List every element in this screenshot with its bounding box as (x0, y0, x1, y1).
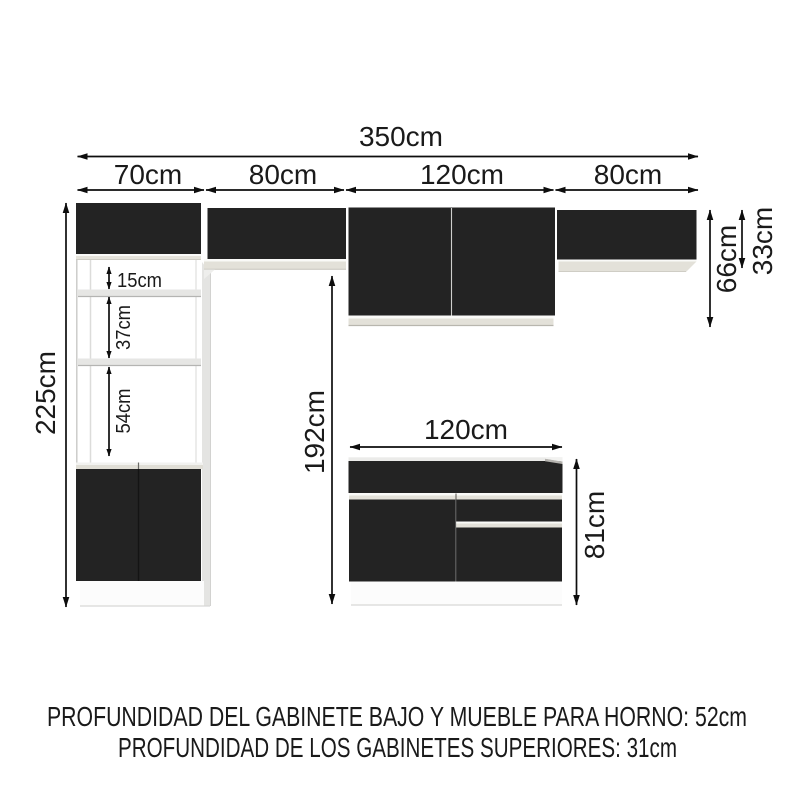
svg-text:192cm: 192cm (299, 390, 330, 474)
svg-text:80cm: 80cm (249, 159, 317, 190)
svg-text:225cm: 225cm (30, 351, 61, 435)
svg-text:37cm: 37cm (113, 305, 135, 350)
svg-text:81cm: 81cm (579, 491, 610, 559)
svg-text:350cm: 350cm (359, 121, 443, 152)
svg-text:33cm: 33cm (747, 207, 778, 275)
svg-text:PROFUNDIDAD DEL GABINETE BAJO: PROFUNDIDAD DEL GABINETE BAJO Y MUEBLE P… (47, 701, 747, 732)
svg-text:PROFUNDIDAD DE LOS GABINETES S: PROFUNDIDAD DE LOS GABINETES SUPERIORES:… (118, 732, 677, 763)
svg-text:80cm: 80cm (594, 159, 662, 190)
svg-text:120cm: 120cm (424, 414, 508, 445)
svg-text:54cm: 54cm (113, 389, 135, 434)
svg-text:120cm: 120cm (420, 159, 504, 190)
svg-text:15cm: 15cm (117, 270, 162, 292)
svg-text:70cm: 70cm (114, 159, 182, 190)
svg-text:66cm: 66cm (711, 225, 742, 293)
